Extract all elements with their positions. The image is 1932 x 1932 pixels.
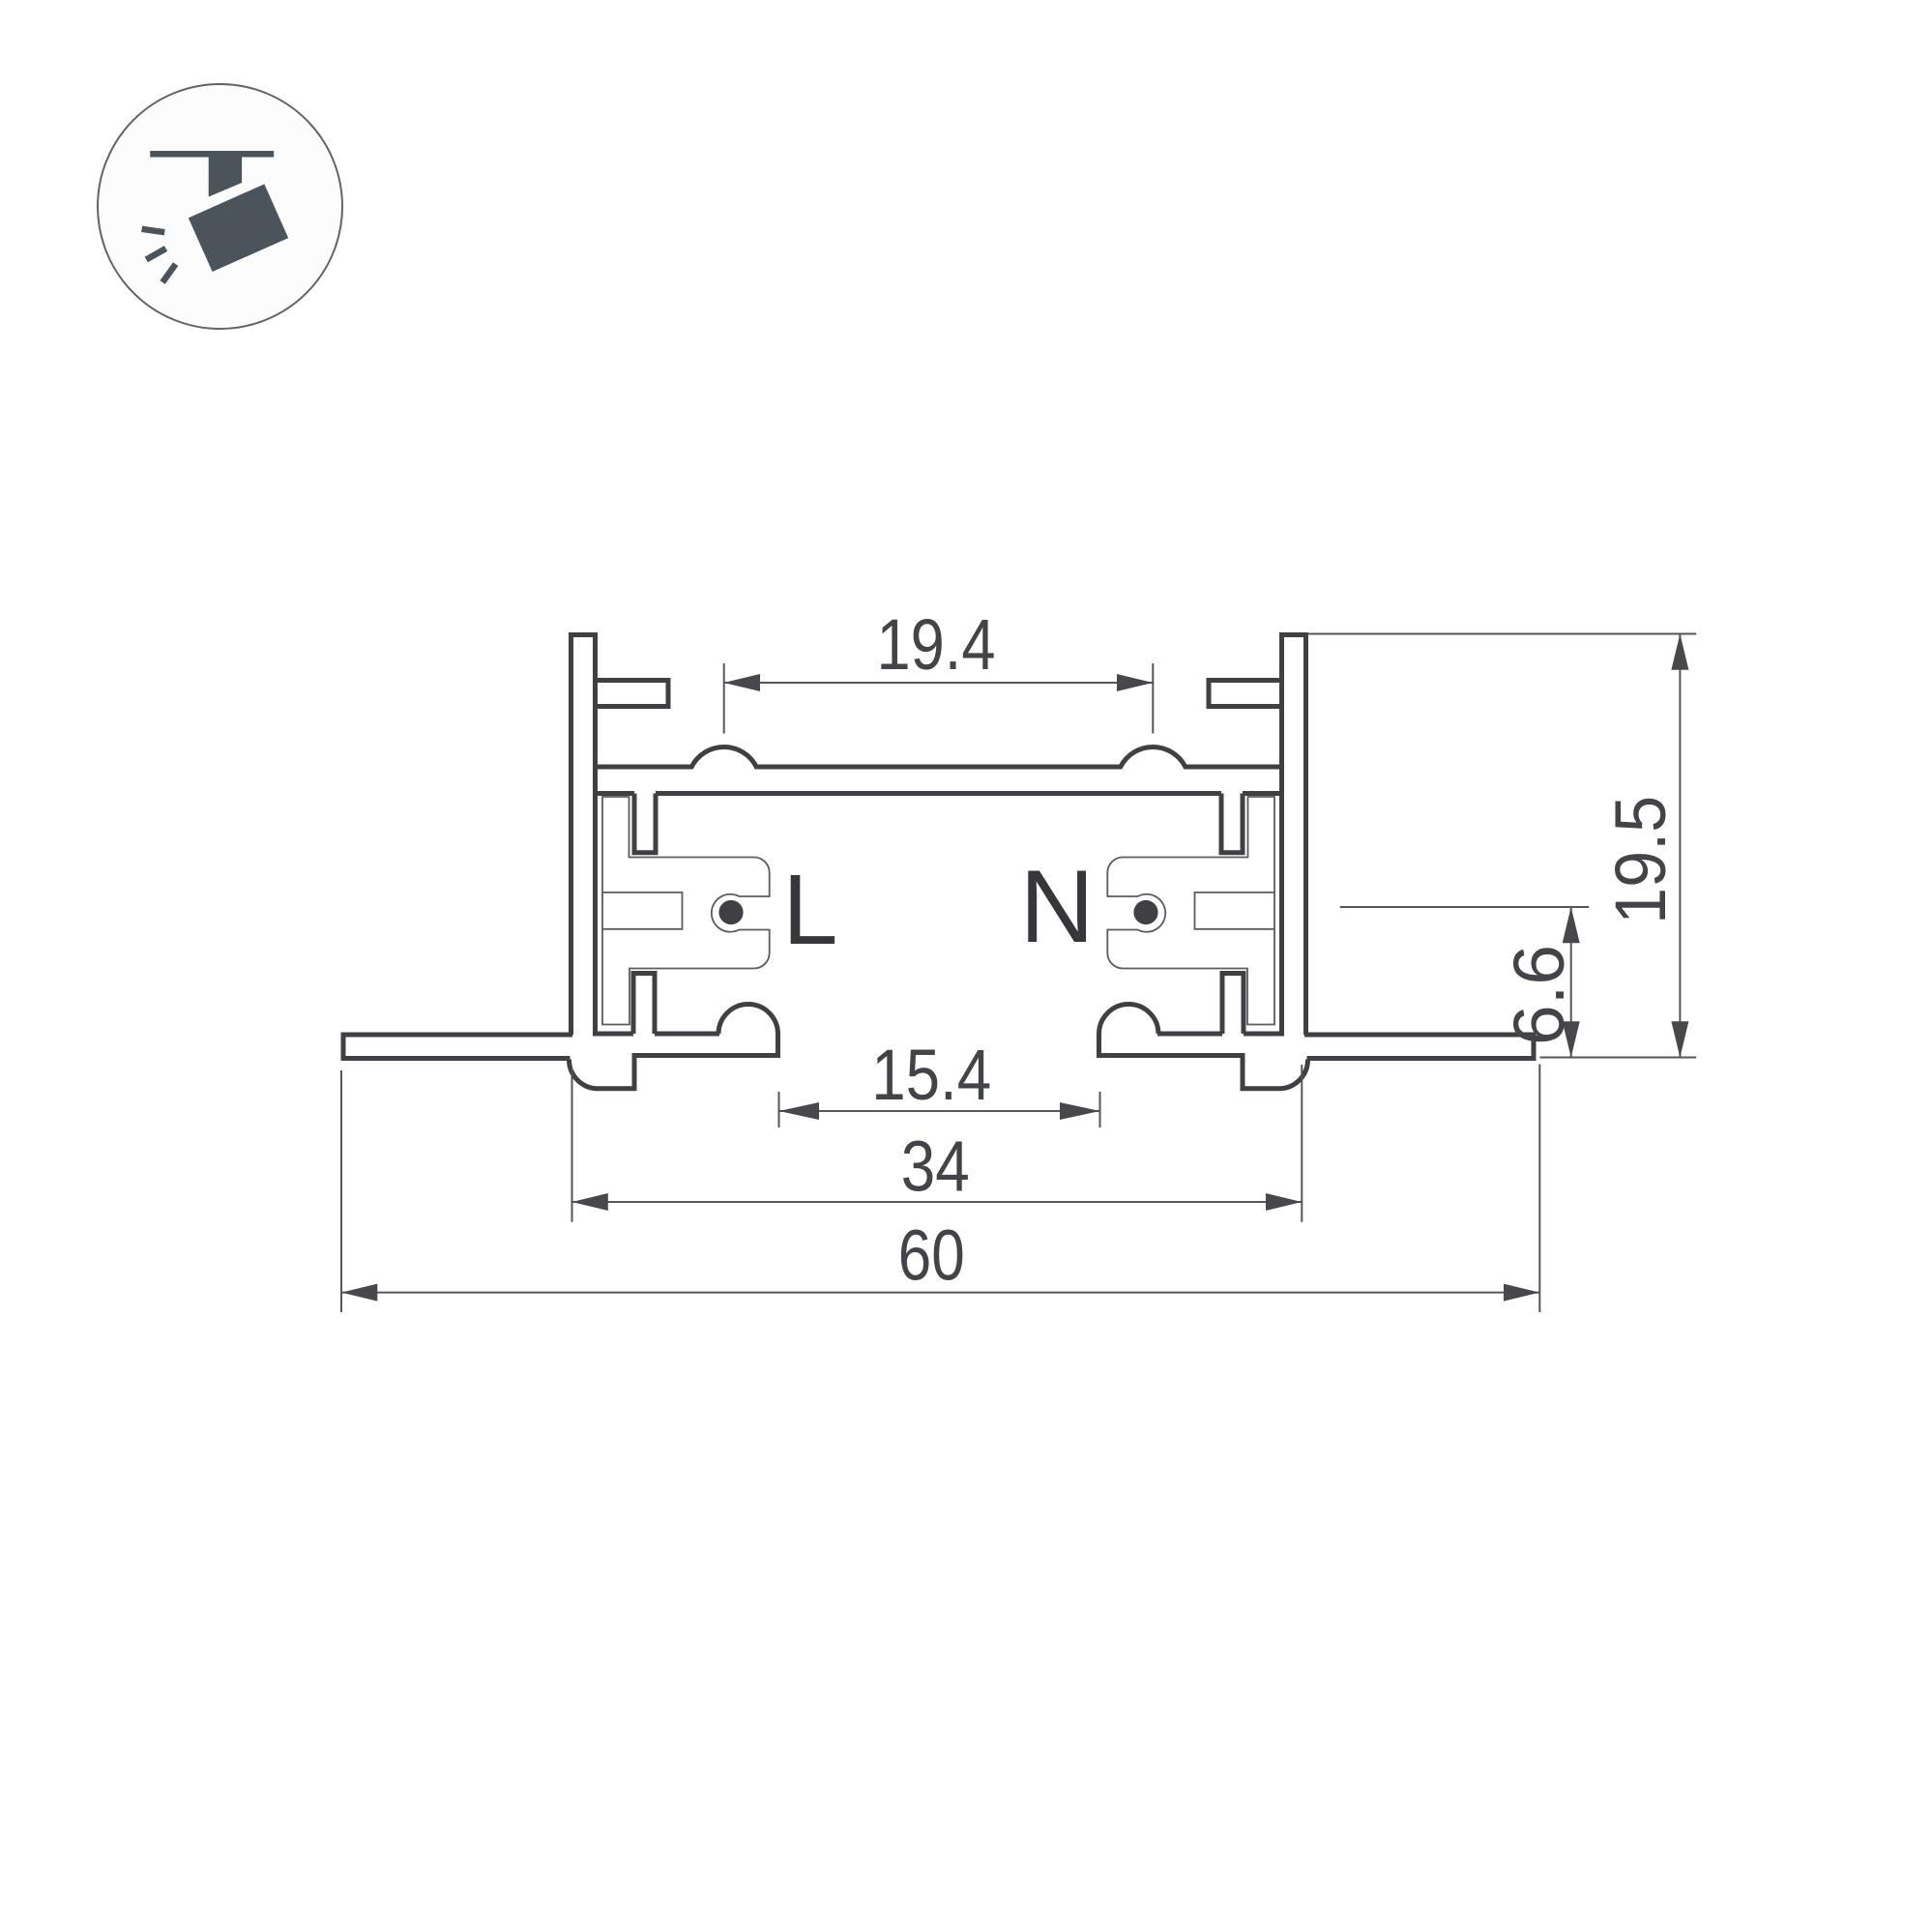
svg-text:N: N: [1020, 848, 1095, 964]
svg-text:L: L: [782, 854, 837, 965]
svg-text:34: 34: [901, 1127, 970, 1207]
svg-text:19.5: 19.5: [1600, 796, 1681, 924]
svg-text:19.4: 19.4: [877, 604, 996, 685]
svg-text:60: 60: [898, 1215, 965, 1296]
svg-text:6.6: 6.6: [1499, 945, 1579, 1045]
svg-text:15.4: 15.4: [871, 1035, 991, 1115]
